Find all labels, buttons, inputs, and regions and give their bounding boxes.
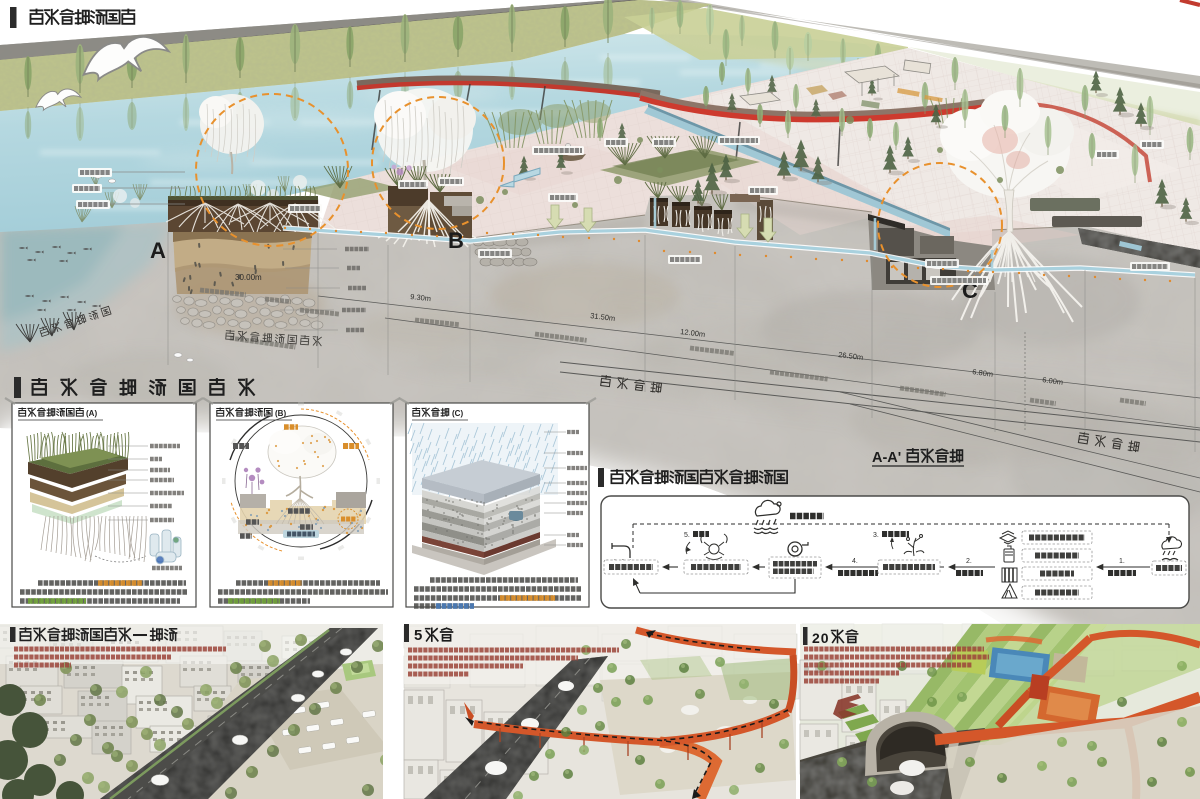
svg-text:A-A': A-A'	[872, 450, 901, 466]
svg-text:4.: 4.	[852, 558, 858, 565]
svg-text:5: 5	[414, 627, 422, 644]
svg-text:5.: 5.	[684, 532, 690, 539]
svg-text:2.: 2.	[966, 558, 972, 565]
svg-text:B: B	[448, 228, 464, 253]
svg-text:30.00m: 30.00m	[235, 273, 262, 282]
svg-text:A: A	[150, 238, 166, 263]
svg-text:(A): (A)	[86, 409, 97, 418]
svg-text:20: 20	[812, 630, 830, 646]
svg-text:3.: 3.	[873, 532, 879, 539]
svg-text:(C): (C)	[452, 409, 463, 418]
svg-text:1.: 1.	[1119, 558, 1125, 565]
